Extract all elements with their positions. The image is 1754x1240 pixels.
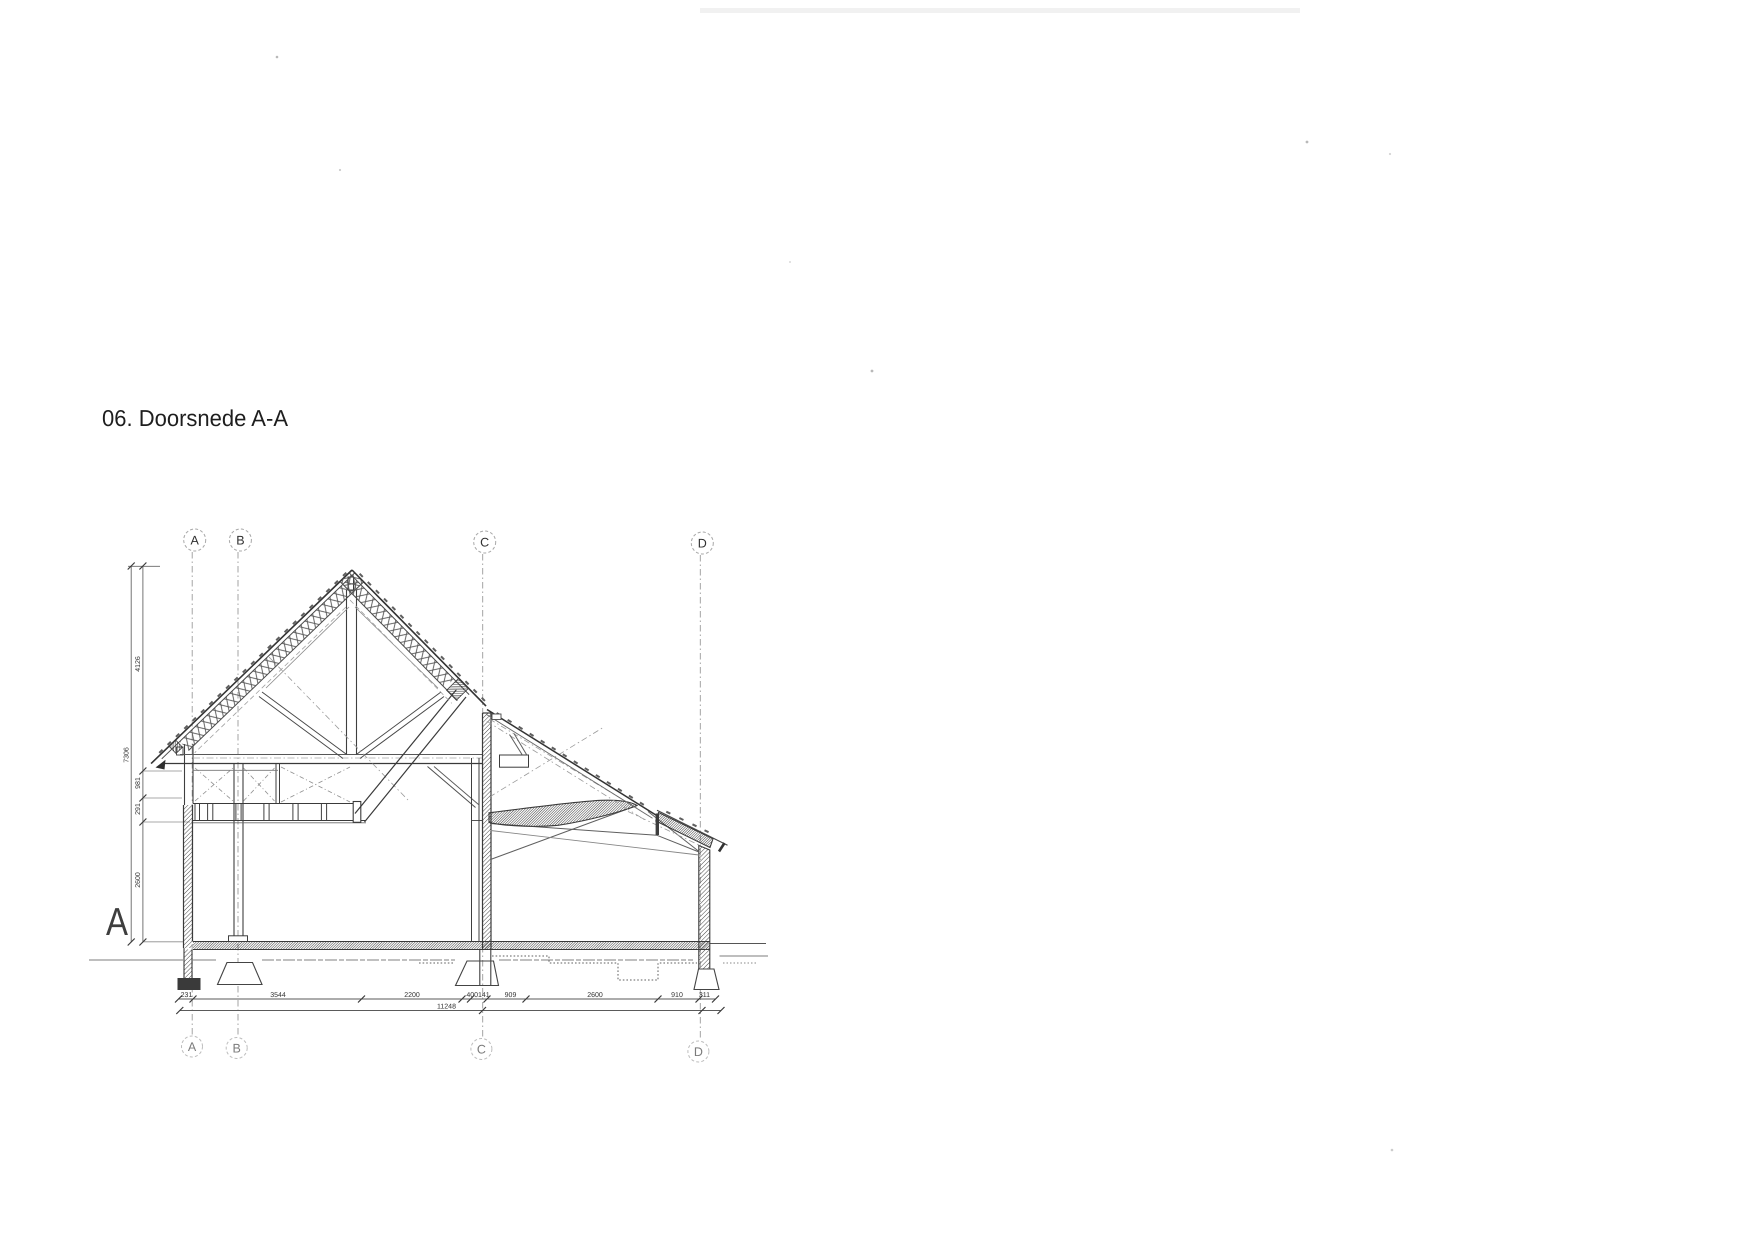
svg-text:2200: 2200 — [404, 992, 420, 999]
svg-text:C: C — [477, 1043, 486, 1057]
svg-text:A: A — [106, 901, 128, 944]
svg-text:910: 910 — [671, 992, 683, 999]
svg-text:311: 311 — [699, 992, 710, 999]
svg-text:A: A — [191, 534, 200, 548]
svg-text:D: D — [694, 1045, 703, 1059]
svg-text:291: 291 — [135, 803, 142, 815]
svg-text:4126: 4126 — [135, 656, 142, 672]
svg-text:231: 231 — [181, 992, 193, 999]
svg-text:981: 981 — [135, 777, 142, 789]
svg-text:C: C — [480, 536, 489, 550]
svg-text:400141: 400141 — [466, 992, 489, 999]
svg-text:06. Doorsnede A-A: 06. Doorsnede A-A — [102, 405, 289, 431]
svg-text:2600: 2600 — [135, 872, 142, 888]
svg-text:2600: 2600 — [587, 992, 603, 999]
svg-text:909: 909 — [505, 992, 517, 999]
svg-text:7306: 7306 — [124, 747, 131, 763]
svg-text:A: A — [188, 1040, 197, 1054]
svg-text:B: B — [233, 1042, 241, 1056]
svg-text:B: B — [236, 534, 244, 548]
svg-text:D: D — [698, 537, 707, 551]
svg-text:3544: 3544 — [270, 992, 286, 999]
svg-text:11248: 11248 — [437, 1004, 456, 1011]
